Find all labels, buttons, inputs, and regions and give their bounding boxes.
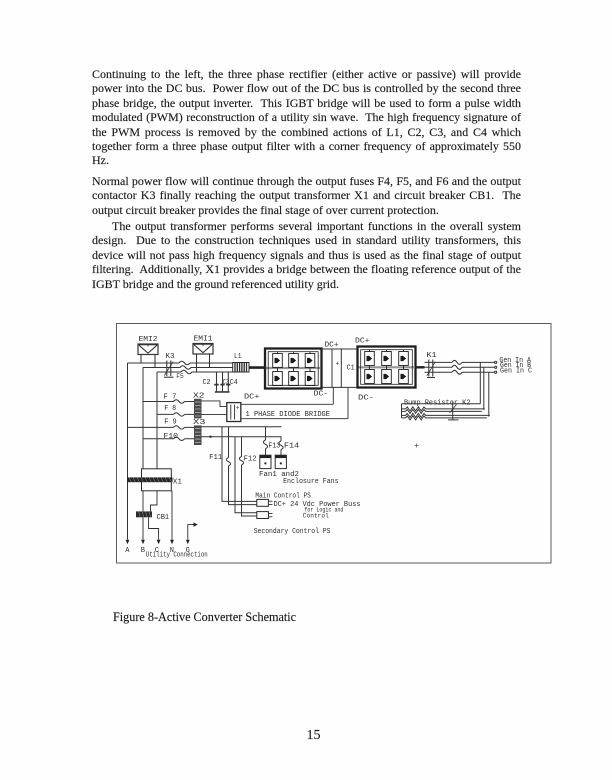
svg-text:F 8: F 8 <box>164 405 176 413</box>
svg-text:Gen In C: Gen In C <box>500 368 532 376</box>
svg-text:EMI1: EMI1 <box>194 335 213 343</box>
svg-text:Enclosure Fans: Enclosure Fans <box>283 478 339 486</box>
svg-text:C1: C1 <box>347 364 355 372</box>
svg-text:Control: Control <box>303 512 329 519</box>
svg-text:X1: X1 <box>173 478 182 486</box>
svg-text:EMI2: EMI2 <box>139 336 158 344</box>
svg-text:Utility Connection: Utility Connection <box>146 551 208 559</box>
svg-text:+: + <box>236 405 240 412</box>
svg-text:A: A <box>125 547 130 555</box>
svg-text:C4: C4 <box>230 379 238 387</box>
svg-text:Secondary Control PS: Secondary Control PS <box>254 528 331 536</box>
svg-text:F14: F14 <box>284 442 299 450</box>
svg-text:F12: F12 <box>244 455 257 463</box>
svg-text:DC+: DC+ <box>325 341 339 349</box>
svg-text:CB1: CB1 <box>157 514 170 522</box>
svg-text:L1: L1 <box>234 353 242 361</box>
svg-text:F13: F13 <box>268 442 280 450</box>
svg-text:DC+: DC+ <box>355 337 370 345</box>
svg-text:DC+: DC+ <box>244 394 260 402</box>
svg-text:1 PHASE DIODE BRIDGE: 1 PHASE DIODE BRIDGE <box>246 411 331 419</box>
svg-text:DC-: DC- <box>358 394 374 402</box>
svg-text:B: B <box>141 547 145 555</box>
svg-text:F11: F11 <box>209 454 222 462</box>
svg-text:+: + <box>336 360 340 367</box>
svg-text:F5: F5 <box>176 373 184 380</box>
svg-text:F 9: F 9 <box>164 418 177 426</box>
svg-text:DC-: DC- <box>314 391 329 399</box>
svg-text:K1: K1 <box>427 352 437 360</box>
svg-text:C3: C3 <box>223 379 230 387</box>
svg-text:K3: K3 <box>166 353 175 361</box>
svg-text:C2: C2 <box>203 379 211 387</box>
